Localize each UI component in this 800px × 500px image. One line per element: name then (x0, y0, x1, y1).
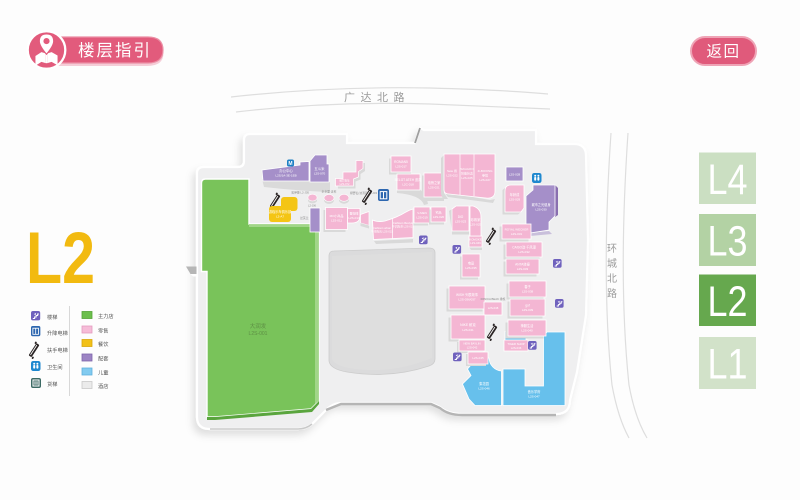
svg-text:L2S-023: L2S-023 (455, 220, 467, 224)
svg-text:gof: gof (525, 304, 530, 308)
svg-text:蚕咖啡: 蚕咖啡 (349, 211, 358, 216)
svg-text:路: 路 (607, 287, 617, 300)
svg-text:L1: L1 (708, 341, 748, 389)
svg-text:城: 城 (607, 258, 617, 270)
svg-text:午茶陈氏 L2S-015: 午茶陈氏 L2S-015 (371, 230, 393, 234)
svg-text:环: 环 (607, 244, 617, 255)
svg-text:L2S-036/037: L2S-036/037 (458, 298, 476, 302)
svg-text:L2S-011: L2S-011 (331, 219, 342, 223)
svg-text:扶手电梯: 扶手电梯 (47, 346, 68, 354)
svg-text:五斗米: 五斗米 (314, 166, 325, 171)
svg-text:办公中心: 办公中心 (279, 168, 293, 173)
svg-text:SrbsGOO: SrbsGOO (460, 167, 474, 171)
svg-text:L2S-022: L2S-022 (446, 174, 458, 178)
svg-text:楼梯: 楼梯 (47, 313, 57, 321)
svg-text:L2S-019: L2S-019 (416, 216, 428, 220)
svg-text:亲亲里·五谷: 亲亲里·五谷 (322, 190, 337, 194)
svg-text:L4: L4 (708, 156, 748, 204)
svg-text:L2S-027: L2S-027 (479, 178, 491, 182)
svg-text:Caibison lifestyle: Caibison lifestyle (393, 221, 414, 225)
svg-text:L2S-047: L2S-047 (528, 395, 540, 399)
svg-text:L2S-001: L2S-001 (249, 331, 268, 337)
svg-text:儿童: 儿童 (98, 369, 108, 377)
svg-text:L2-A7: L2-A7 (276, 215, 284, 219)
svg-text:L3: L3 (708, 218, 748, 266)
svg-text:升降电梯: 升降电梯 (47, 329, 68, 337)
svg-text:城市之光健身: 城市之光健身 (531, 202, 550, 207)
svg-text:蜜伊娅 L2-J05: 蜜伊娅 L2-J05 (291, 191, 309, 195)
svg-text:春子: 春子 (524, 284, 531, 289)
svg-text:酒店: 酒店 (98, 382, 108, 390)
svg-text:BELGT ATEH 道具: BELGT ATEH 道具 (395, 177, 422, 182)
svg-text:绿野仙·浓汤燕 L2-J03: 绿野仙·浓汤燕 L2-J03 (350, 191, 377, 195)
svg-text:配套: 配套 (98, 355, 109, 363)
svg-text:L2: L2 (26, 218, 95, 299)
svg-text:Sete 扬: Sete 扬 (447, 168, 457, 173)
svg-text:货梯: 货梯 (47, 380, 57, 388)
svg-text:游临乐车俱乐部: 游临乐车俱乐部 (269, 209, 292, 214)
svg-text:电桥之家: 电桥之家 (428, 180, 442, 185)
svg-text:宅品: 宅品 (435, 210, 441, 215)
svg-text:午后陈茶 L2S-016: 午后陈茶 L2S-016 (392, 225, 414, 229)
svg-text:返回: 返回 (706, 43, 740, 61)
svg-text:餐饮: 餐饮 (98, 340, 109, 348)
svg-text:L2S-041: L2S-041 (462, 328, 474, 332)
svg-text:L2S-032: L2S-032 (518, 250, 530, 254)
svg-text:L2: L2 (708, 278, 748, 326)
svg-text:L2S-030: L2S-030 (535, 208, 547, 212)
svg-text:4i-BOXING: 4i-BOXING (477, 169, 493, 173)
svg-text:L2S-072: L2S-072 (340, 182, 350, 186)
svg-text:L2-J06: L2-J06 (308, 204, 316, 208)
svg-text:主力店: 主力店 (98, 312, 114, 320)
svg-text:集花园: 集花园 (479, 381, 489, 386)
svg-text:L2S-038: L2S-038 (522, 290, 534, 294)
svg-text:L2S-045: L2S-045 (472, 356, 484, 360)
svg-text:L2S-013: L2S-013 (348, 216, 360, 220)
svg-text:L2S-025: L2S-025 (461, 176, 473, 180)
svg-text:电品: 电品 (468, 261, 474, 266)
svg-text:北: 北 (607, 273, 617, 285)
svg-text:L2S-049: L2S-049 (470, 241, 481, 245)
svg-text:L2S-033: L2S-033 (517, 267, 529, 271)
svg-text:楼层指引: 楼层指引 (78, 41, 152, 60)
svg-text:L2S-039: L2S-039 (522, 308, 534, 312)
svg-text:L2S-028: L2S-028 (509, 173, 521, 177)
svg-text:卫生间: 卫生间 (47, 363, 63, 371)
svg-text:大润发: 大润发 (250, 322, 267, 330)
svg-text:WISH 列表故事: WISH 列表故事 (456, 292, 479, 297)
svg-text:丝芙兰: 丝芙兰 (300, 216, 309, 220)
svg-text:L2S-048: L2S-048 (488, 306, 499, 310)
svg-text:音乐学府: 音乐学府 (528, 389, 542, 394)
svg-text:PANICA BEAK 排施: PANICA BEAK 排施 (481, 297, 506, 301)
svg-text:L2S-031: L2S-031 (511, 232, 523, 236)
svg-text:L2S-046: L2S-046 (511, 346, 522, 350)
svg-text:L2S-040: L2S-040 (521, 329, 533, 333)
svg-text:L2S-070: L2S-070 (314, 172, 326, 176)
svg-text:L2S-020: L2S-020 (433, 215, 445, 219)
svg-text:ANTA体操: ANTA体操 (515, 262, 530, 267)
svg-text:拳馆: 拳馆 (482, 173, 488, 178)
svg-text:L2S-025: L2S-025 (470, 223, 482, 227)
svg-text:DiO: DiO (458, 215, 464, 219)
svg-text:NIKE 耐克: NIKE 耐克 (460, 322, 476, 327)
svg-text:珍珠家: 珍珠家 (471, 217, 481, 222)
svg-text:L2S-035: L2S-035 (465, 266, 477, 270)
svg-text:L2S-021: L2S-021 (428, 186, 440, 190)
svg-text:L2S-042: L2S-042 (467, 346, 478, 350)
svg-text:智能状态: 智能状态 (461, 171, 473, 176)
svg-text:CAISO劲 千风潮: CAISO劲 千风潮 (512, 245, 536, 250)
svg-text:V-MEN: V-MEN (417, 211, 427, 215)
svg-text:广达北路: 广达北路 (344, 91, 410, 104)
svg-text:ROYAL WECKER: ROYAL WECKER (505, 228, 530, 232)
svg-text:神服生活: 神服生活 (521, 323, 535, 328)
svg-text:MO小商品: MO小商品 (330, 213, 344, 218)
svg-text:年龄成: 年龄成 (510, 192, 520, 197)
svg-text:L2S-029: L2S-029 (509, 198, 521, 202)
svg-text:ROMAN5: ROMAN5 (394, 160, 408, 164)
svg-text:L2S-017: L2S-017 (395, 165, 407, 169)
svg-text:Caibison urban: Caibison urban (373, 226, 392, 230)
svg-text:L2C-018: L2C-018 (402, 183, 414, 187)
svg-text:L2S/1A-3E-1EB: L2S/1A-3E-1EB (275, 174, 296, 178)
svg-text:L2S-046: L2S-046 (478, 387, 490, 391)
svg-text:零售: 零售 (98, 327, 108, 335)
